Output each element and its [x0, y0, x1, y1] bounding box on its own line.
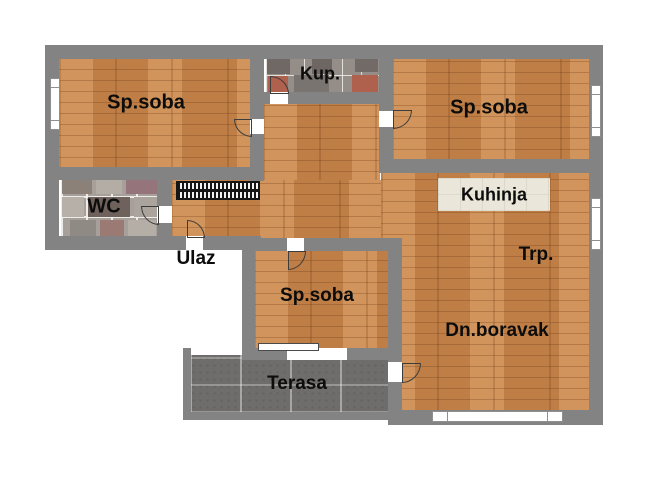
- label-entrance: Ulaz: [176, 248, 215, 270]
- wc-tile: [96, 179, 122, 194]
- wall-bedroom2-bottom: [379, 159, 589, 173]
- door-gap-bedroom1: [250, 119, 264, 134]
- label-bathroom: Kup.: [300, 64, 340, 85]
- wall-terrace-bottom: [183, 412, 402, 420]
- wc-tile: [100, 220, 124, 237]
- label-terrace: Terasa: [267, 373, 327, 395]
- label-dining: Trp.: [519, 244, 554, 266]
- label-bedroom-top-right: Sp.soba: [450, 97, 528, 120]
- floor-plan: Sp.soba Kup. Sp.soba WC Kuhinja Ulaz Trp…: [0, 0, 650, 482]
- wall-bedroom1-bottom: [45, 167, 264, 180]
- door-gap-bedroom2: [379, 111, 393, 127]
- wall-bedroom3-right: [388, 238, 402, 412]
- window-icon-right-mid: [591, 198, 601, 250]
- window-icon-bedroom-middle: [258, 343, 319, 351]
- window-icon-living-bottom: [432, 411, 563, 422]
- label-bedroom-middle: Sp.soba: [280, 285, 354, 307]
- door-gap-wc: [157, 206, 172, 223]
- wall-terrace-left: [183, 348, 191, 420]
- wc-tile: [62, 197, 84, 217]
- window-icon-right-top: [591, 85, 601, 137]
- label-wc: WC: [87, 196, 120, 219]
- label-living-room: Dn.boravak: [445, 320, 548, 342]
- wall-bedroom2-left: [379, 45, 393, 173]
- floor-hallway-upper: [263, 103, 380, 183]
- bathroom-tile: [267, 58, 290, 74]
- radiator-icon: [176, 181, 260, 200]
- wall-left: [45, 45, 59, 250]
- wall-top: [45, 45, 603, 59]
- label-kitchen: Kuhinja: [461, 185, 527, 206]
- bathroom-tile: [355, 58, 378, 72]
- bathroom-tile: [352, 75, 378, 93]
- door-gap-terrace-living: [388, 362, 402, 382]
- door-gap-bedroom3: [287, 238, 304, 251]
- wall-bedroom3-left: [242, 238, 255, 360]
- wall-hall-bottom: [45, 236, 261, 250]
- wc-tile: [62, 179, 92, 194]
- wc-tile: [126, 179, 158, 194]
- window-icon-left: [50, 78, 60, 130]
- wall-bedroom3-top: [246, 238, 402, 251]
- label-bedroom-top-left: Sp.soba: [107, 92, 185, 115]
- wc-tile: [70, 220, 96, 237]
